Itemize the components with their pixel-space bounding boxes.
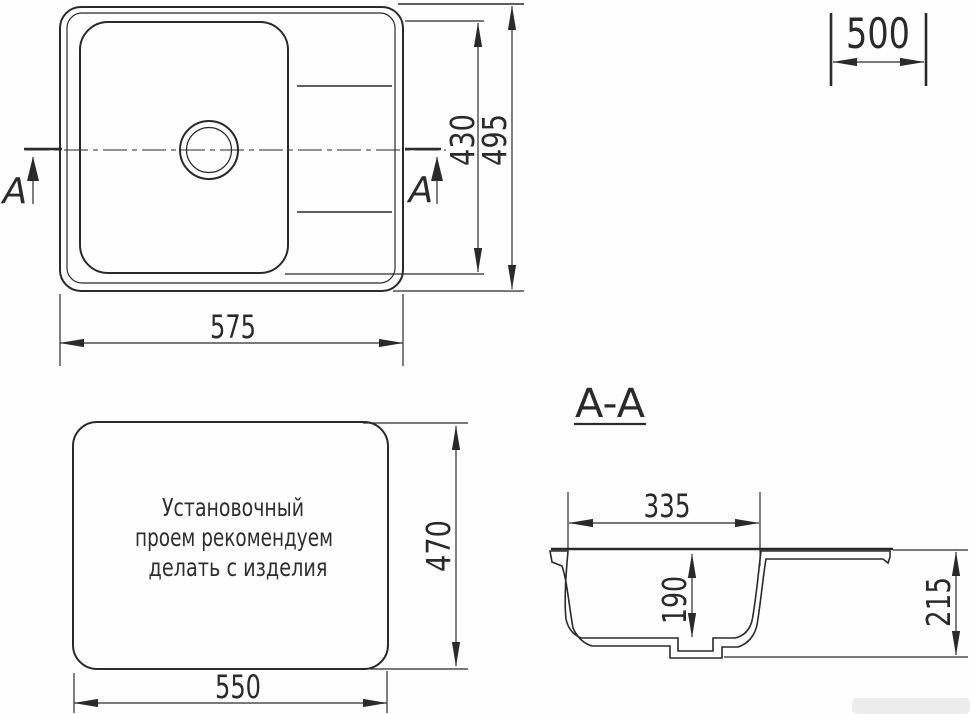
dim-label-cutout-height: 470: [419, 520, 458, 572]
cutout-note: Установочный проем рекомендуем делать с …: [135, 493, 333, 582]
dim-label-width: 575: [210, 308, 256, 346]
dim-470: 470: [363, 423, 468, 669]
section-marker-right: A: [405, 149, 441, 211]
section-material: [550, 551, 890, 658]
top-view: A A 575 430 495: [1, 4, 524, 366]
dim-430: 430: [285, 21, 484, 274]
dim-label-bowl-depth: 190: [655, 576, 694, 624]
section-letter-right: A: [407, 170, 434, 211]
sink-technical-drawing: A A 575 430 495: [0, 0, 970, 714]
dim-label-depth-500: 500: [846, 9, 910, 58]
dim-190: 190: [655, 554, 694, 637]
note-line-1: Установочный: [162, 493, 304, 522]
cutout-view: Установочный проем рекомендуем делать с …: [73, 422, 468, 713]
section-letter-left: A: [1, 171, 28, 212]
bowl-edge: [80, 22, 288, 273]
dim-550: 550: [74, 668, 387, 713]
note-line-3: делать с изделия: [149, 553, 328, 582]
section-title: A-A: [575, 381, 646, 427]
dim-575: 575: [60, 294, 403, 366]
dim-label-overall-height: 495: [475, 114, 514, 166]
dim-335: 335: [568, 487, 760, 566]
section-view: A-A 335 190 215: [550, 381, 968, 658]
watermark: [852, 698, 970, 714]
dim-label-bowl-width: 335: [644, 487, 691, 525]
corner-dimension-500: 500: [831, 9, 926, 86]
section-marker-left: A: [1, 149, 62, 212]
note-line-2: проем рекомендуем: [135, 523, 333, 552]
dim-label-overall-depth: 215: [919, 577, 958, 627]
dim-label-cutout-width: 550: [215, 668, 261, 706]
drawing-sheet: A A 575 430 495: [0, 0, 970, 714]
